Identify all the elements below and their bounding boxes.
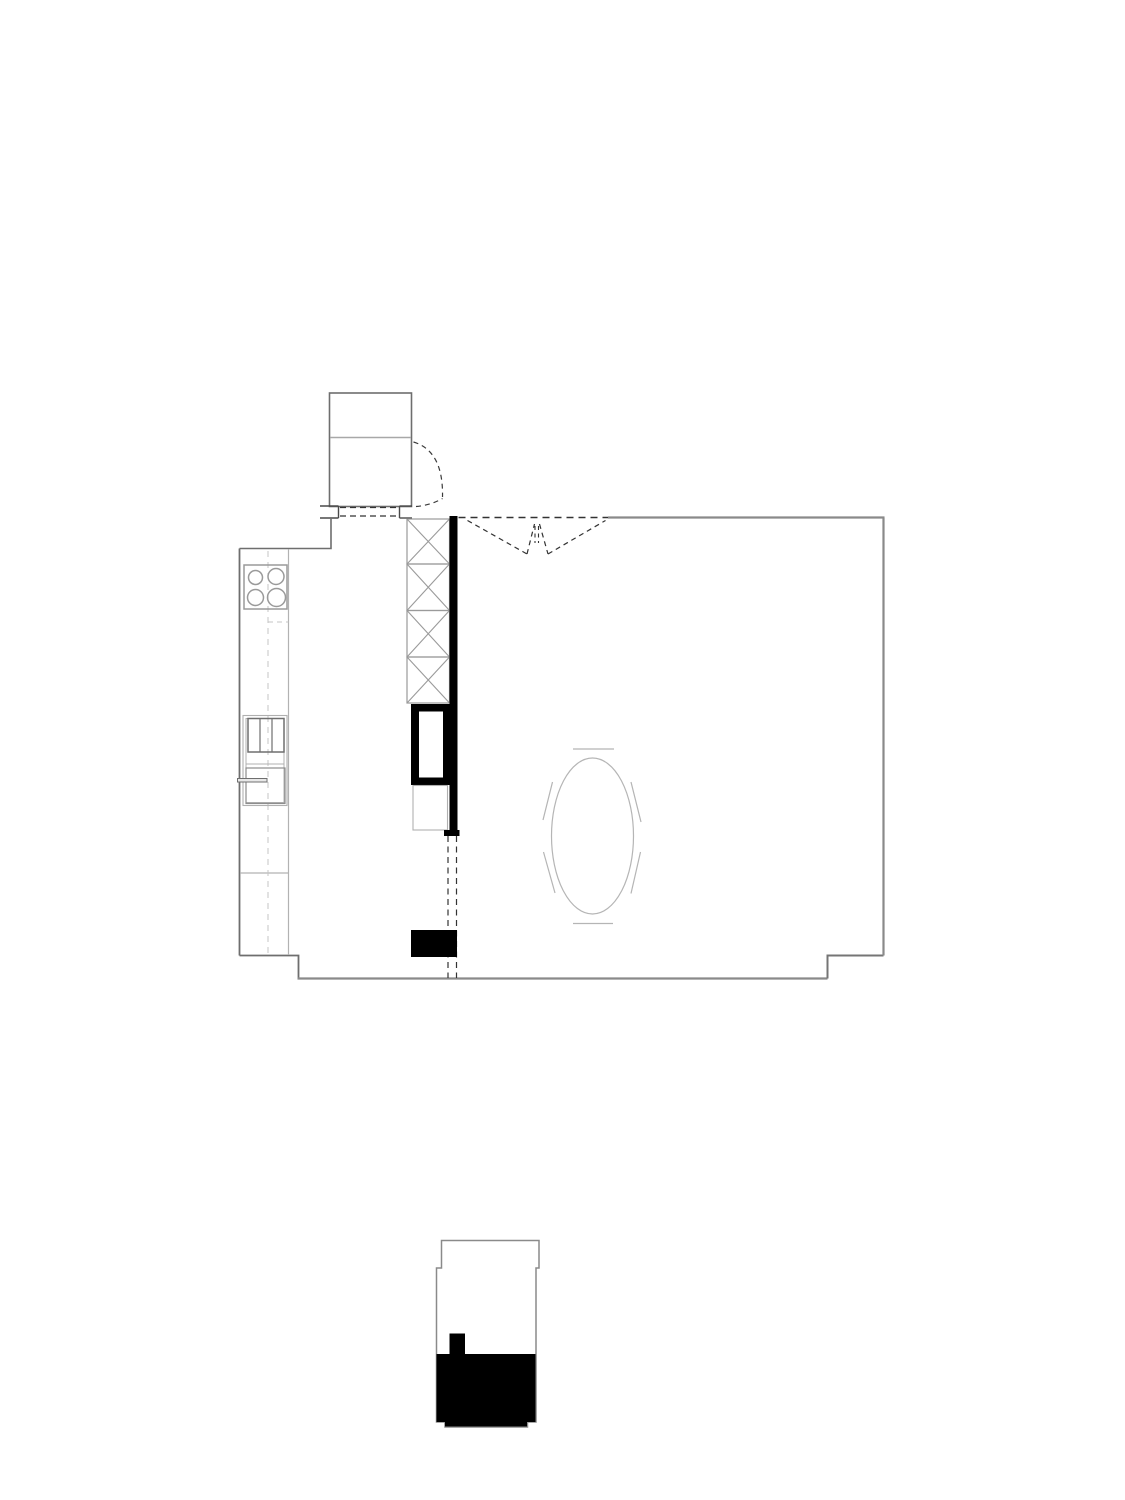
- stair-block-inner: [419, 712, 443, 778]
- oven-handle: [238, 779, 268, 783]
- wall-bottom-right-step: [828, 956, 884, 979]
- partition-wall-poche: [450, 516, 458, 833]
- drawer-unit-outline: [248, 719, 284, 753]
- cooktop-burner-top-left: [249, 571, 263, 585]
- wall-bottom-left-step: [240, 956, 299, 979]
- cooktop-outline: [244, 565, 287, 609]
- door-swing-left-leaf: [527, 524, 535, 554]
- oven-unit-outline: [246, 768, 285, 804]
- floor-plan-svg: [0, 0, 1125, 1500]
- door-swing-right-leaf: [540, 524, 549, 554]
- cooktop-burner-bottom-right: [268, 589, 286, 607]
- wall-left-upper: [240, 518, 332, 549]
- door-swing-left-chord: [468, 521, 528, 555]
- cooktop-burner-bottom-left: [248, 590, 264, 606]
- chair-mark-left-upper: [543, 782, 553, 820]
- wall-end-foot: [444, 830, 460, 836]
- sink-unit-outer: [243, 716, 287, 806]
- island-block: [411, 930, 457, 957]
- cabinet-below-stair: [413, 786, 448, 831]
- door-swing-right-chord: [548, 521, 606, 555]
- closet-door-leaf: [416, 499, 443, 507]
- keyplan-filled-area: [437, 1334, 536, 1427]
- cooktop-burner-top-right: [268, 569, 284, 585]
- floor-plan-page: [0, 0, 1125, 1500]
- dining-table-ellipse: [552, 758, 634, 914]
- closet-door-swing-arc: [414, 442, 443, 497]
- sink-unit-inner: [246, 719, 284, 803]
- closet-outline: [330, 393, 412, 507]
